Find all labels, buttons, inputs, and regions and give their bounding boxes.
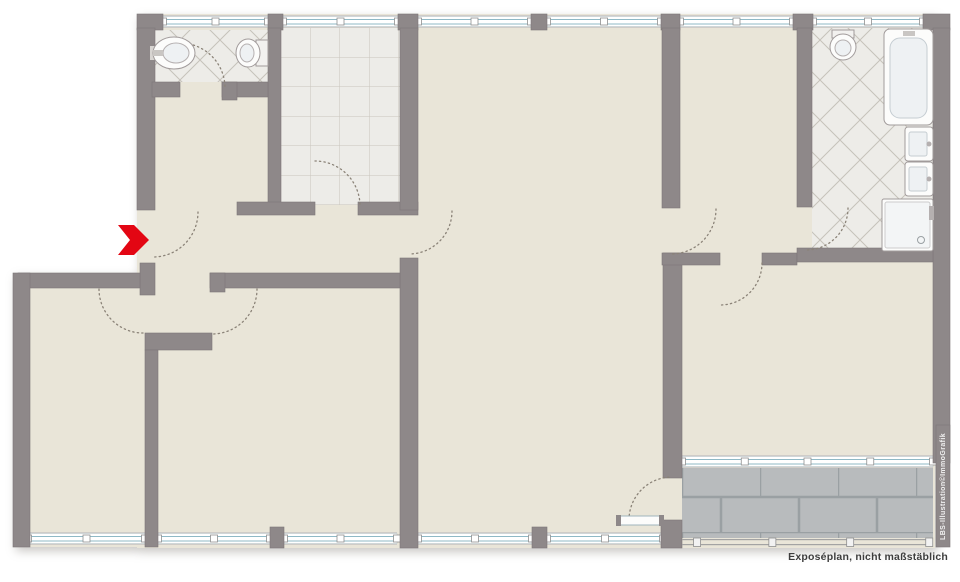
bl2-window-pier <box>270 527 284 548</box>
kitchen-wall-head-pier <box>268 14 283 30</box>
bedroom2-window-west-mullion-1 <box>211 535 218 542</box>
bedroom-left-window <box>25 532 149 545</box>
bedroom-north-wall-west <box>662 253 720 265</box>
hall-south-wall <box>210 273 400 288</box>
living-north-window-west <box>415 15 535 28</box>
wc-window <box>160 15 272 28</box>
wc-toilet <box>236 39 268 67</box>
bedroom2-window-east-mullion-2 <box>394 535 401 542</box>
bedroom-north-wall-east <box>762 253 797 265</box>
bedroom2-window-east <box>281 532 401 545</box>
bath-sink-2-part-1 <box>909 167 927 191</box>
terrace-railing-line-2 <box>682 544 933 545</box>
kitchen-tile-floor <box>281 28 400 205</box>
bath-west-wall <box>797 28 812 207</box>
bath-sink-1 <box>905 127 933 161</box>
terrace-door-leaf <box>616 515 664 526</box>
bath-toilet <box>830 30 856 60</box>
shower-part-1 <box>885 202 930 248</box>
shower-part-3 <box>929 206 934 220</box>
terrace-railing-post-0 <box>694 538 701 547</box>
plan-caption: Exposéplan, nicht maßstäblich <box>788 551 948 563</box>
bedroom-terrace-window-mullion-1 <box>741 458 748 465</box>
middleroom-window-mullion-1 <box>733 18 740 25</box>
floor-plan: LBS-Illustration©ImmoGrafik Exposéplan, … <box>0 0 960 582</box>
wc-south-wall-west <box>152 82 180 97</box>
bath-sink-2 <box>905 162 933 196</box>
bedroom-west-wall <box>663 253 682 478</box>
terrace-tile-floor <box>682 462 933 538</box>
living-west-wall-lower <box>400 258 418 548</box>
bath-window <box>810 15 927 28</box>
middleroom-west-wall <box>662 28 680 208</box>
bath-sink-1-part-1 <box>909 132 927 156</box>
shower <box>882 199 934 251</box>
terrace-door-leaf-part-0 <box>618 516 663 525</box>
hall-north-wall-west <box>237 202 315 215</box>
terrace-railing-line-1 <box>682 539 933 540</box>
bath-sink-2-part-2 <box>927 177 932 182</box>
top-right-corner-pier <box>923 14 950 30</box>
terrace-door-leaf-part-1 <box>616 515 621 526</box>
bedrooms-divider-wall <box>145 350 158 547</box>
left-lower-exterior-wall <box>13 273 30 547</box>
left-wing-floor <box>13 273 137 547</box>
bath-toilet-part-2 <box>835 40 851 56</box>
living-west-head-pier <box>398 14 418 30</box>
right-exterior-wall <box>933 28 950 463</box>
floor-plan-svg <box>0 0 960 582</box>
wc-sink-part-2 <box>163 43 189 63</box>
wc-window-mullion-1 <box>212 18 219 25</box>
bedroom2-window-west <box>155 532 274 545</box>
terrace-corner-wall <box>661 520 682 548</box>
bedroom2-window-east-mullion-1 <box>337 535 344 542</box>
bedroom-terrace-window-mullion-3 <box>867 458 874 465</box>
watermark-label: LBS-Illustration©ImmoGrafik <box>936 425 950 547</box>
bath-sink-1-part-2 <box>927 142 932 147</box>
bathtub <box>884 29 933 125</box>
bedroom-terrace-window <box>679 455 937 468</box>
terrace-railing-post-1 <box>769 538 776 547</box>
kitchen-window <box>280 15 402 28</box>
kitchen-window-mullion-1 <box>337 18 344 25</box>
terrace-railing-post-2 <box>847 538 854 547</box>
living-south-window-west <box>415 532 536 545</box>
living-window-mid-pier <box>531 14 547 30</box>
watermark-text: LBS-Illustration©ImmoGrafik <box>940 433 947 540</box>
terrace-door-leaf-part-2 <box>659 515 664 526</box>
terrace-railing-post-3 <box>926 538 933 547</box>
middleroom-window <box>677 15 797 28</box>
entrance-south-jamb <box>140 263 155 295</box>
living-south-window-east-mullion-1 <box>602 535 609 542</box>
wc-door-jamb <box>222 82 237 100</box>
wc-sink-part-3 <box>153 50 163 56</box>
bedroom-left-window-mullion-1 <box>83 535 90 542</box>
top-left-corner-pier <box>137 14 163 30</box>
living-south-window-west-mullion-1 <box>472 535 479 542</box>
hall-south-jamb <box>210 273 225 292</box>
bath-window-mullion-1 <box>865 18 872 25</box>
living-west-wall-upper <box>400 28 418 210</box>
hall-west-wall <box>18 273 140 288</box>
living-window-mid-pier-bottom <box>532 527 547 548</box>
vestibule-south-wall <box>145 333 212 350</box>
bath-west-head-pier <box>793 14 813 30</box>
living-north-window-east <box>544 15 665 28</box>
living-north-window-west-mullion-1 <box>471 18 478 25</box>
living-north-window-east-mullion-1 <box>601 18 608 25</box>
kitchen-west-wall <box>268 28 281 213</box>
living-south-window-east <box>544 532 667 545</box>
bedroom-terrace-window-mullion-2 <box>804 458 811 465</box>
middleroom-west-head-pier <box>661 14 680 30</box>
bathtub-part-2 <box>903 31 915 36</box>
bathtub-part-1 <box>890 38 927 118</box>
wc-toilet-part-2 <box>240 44 254 62</box>
